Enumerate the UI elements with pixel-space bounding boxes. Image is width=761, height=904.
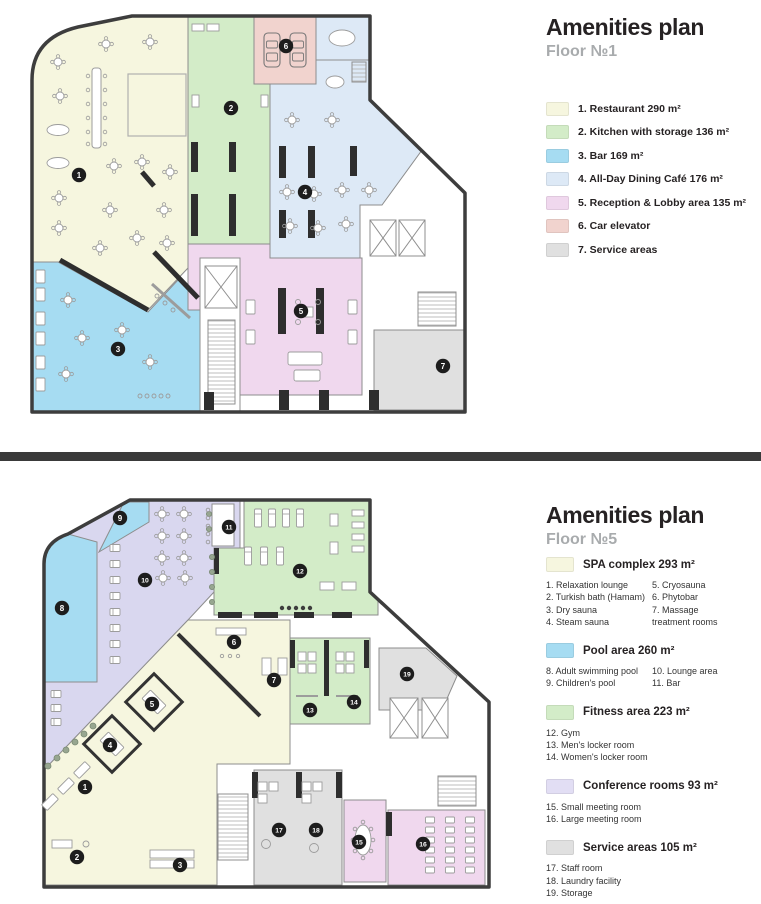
group-items: 8. Adult swimming pool 9. Children's poo… [546, 665, 758, 690]
swatch-service [546, 243, 569, 257]
swatch-kitchen [546, 125, 569, 139]
svg-text:3: 3 [178, 861, 183, 870]
legend-group-conference: Conference rooms 93 m² 15. Small meeting… [546, 779, 758, 826]
legend-subitem: 8. Adult swimming pool [546, 665, 652, 677]
legend-group-fitness: Fitness area 223 m² 12. Gym 13. Men's lo… [546, 705, 758, 764]
group-header: Pool area 260 m² [546, 643, 758, 658]
group-header: Service areas 105 m² [546, 840, 758, 855]
legend-label: Fitness area 223 m² [583, 706, 690, 718]
legend-subitem: 10. Lounge area [652, 665, 752, 677]
floor5-plan: 1 2 3 4 5 6 7 8 9 10 11 12 13 14 15 16 1… [2, 452, 547, 904]
swatch-service-areas [546, 840, 574, 855]
legend-subitem: 11. Bar [652, 677, 752, 689]
marker-7: 7 [267, 673, 281, 687]
marker-1: 1 [72, 168, 86, 182]
group-items: 12. Gym 13. Men's locker room 14. Women'… [546, 727, 758, 764]
marker-3: 3 [111, 342, 125, 356]
staircase [218, 794, 248, 860]
marker-3: 3 [173, 858, 187, 872]
legend-subitem: 2. Turkish bath (Hamam) [546, 591, 652, 603]
legend-label: Service areas 105 m² [583, 842, 697, 854]
marker-15: 15 [352, 835, 366, 849]
legend-item-service: 7. Service areas [546, 238, 758, 262]
svg-text:14: 14 [350, 700, 358, 707]
legend-group-spa: SPA complex 293 m² 1. Relaxation lounge … [546, 557, 758, 628]
floor-subtitle: Floor №1 [546, 42, 758, 61]
marker-6: 6 [279, 39, 293, 53]
legend-group-service: Service areas 105 m² 17. Staff room 18. … [546, 840, 758, 899]
swatch-bar [546, 149, 569, 163]
legend-subitem: treatment rooms [652, 616, 752, 628]
legend-label: 3. Bar 169 m² [578, 150, 643, 162]
swatch-spa [546, 557, 574, 572]
staircase [438, 776, 476, 806]
page-title: Amenities plan [546, 502, 758, 529]
marker-17: 17 [272, 823, 286, 837]
amenities-plan-poster: 1 2 3 4 5 6 7 Amenities plan Floor №1 1.… [0, 0, 761, 904]
legend-subitem: 5. Cryosauna [652, 579, 752, 591]
swatch-pool [546, 643, 574, 658]
legend-subitem: 14. Women's locker room [546, 751, 686, 763]
floor1-plan: 1 2 3 4 5 6 7 [2, 0, 547, 452]
legend-label: Conference rooms 93 m² [583, 780, 718, 792]
marker-2: 2 [70, 850, 84, 864]
staircase [352, 62, 366, 82]
legend-item-car-elevator: 6. Car elevator [546, 215, 758, 239]
svg-text:18: 18 [312, 828, 320, 835]
swatch-cafe [546, 172, 569, 186]
svg-text:1: 1 [83, 783, 88, 792]
svg-text:5: 5 [299, 307, 304, 316]
swatch-fitness [546, 705, 574, 720]
marker-9: 9 [113, 511, 127, 525]
marker-19: 19 [400, 667, 414, 681]
group-header: SPA complex 293 m² [546, 557, 758, 572]
legend-item-cafe: 4. All-Day Dining Café 176 m² [546, 168, 758, 192]
legend-subitem: 3. Dry sauna [546, 604, 652, 616]
svg-text:16: 16 [419, 842, 427, 849]
floor1-section: 1 2 3 4 5 6 7 Amenities plan Floor №1 1.… [0, 0, 761, 452]
marker-1: 1 [78, 780, 92, 794]
swatch-car-elevator [546, 219, 569, 233]
staircase [418, 292, 456, 326]
svg-text:2: 2 [229, 104, 234, 113]
svg-text:2: 2 [75, 853, 80, 862]
marker-2: 2 [224, 101, 238, 115]
svg-text:17: 17 [275, 828, 283, 835]
marker-16: 16 [416, 837, 430, 851]
svg-text:10: 10 [141, 578, 149, 585]
svg-text:3: 3 [116, 345, 121, 354]
legend-subitem: 17. Staff room [546, 862, 686, 874]
legend-label: 5. Reception & Lobby area 135 m² [578, 197, 746, 209]
svg-text:13: 13 [306, 708, 314, 715]
svg-text:4: 4 [303, 188, 308, 197]
legend-label: 4. All-Day Dining Café 176 m² [578, 173, 723, 185]
region-locker-rooms [290, 638, 370, 724]
marker-12: 12 [293, 564, 307, 578]
region-service [374, 330, 465, 410]
staircase [208, 320, 235, 404]
group-items: 1. Relaxation lounge 2. Turkish bath (Ha… [546, 579, 758, 628]
legend-group-pool: Pool area 260 m² 8. Adult swimming pool … [546, 643, 758, 690]
legend-floor5: Amenities plan Floor №5 SPA complex 293 … [546, 502, 758, 904]
swatch-conference [546, 779, 574, 794]
svg-text:7: 7 [272, 676, 277, 685]
legend-subitem: 19. Storage [546, 887, 686, 899]
legend-items: 1. Restaurant 290 m² 2. Kitchen with sto… [546, 97, 758, 262]
legend-item-reception: 5. Reception & Lobby area 135 m² [546, 191, 758, 215]
legend-subitem: 6. Phytobar [652, 591, 752, 603]
legend-groups: SPA complex 293 m² 1. Relaxation lounge … [546, 557, 758, 899]
svg-text:6: 6 [232, 638, 237, 647]
group-header: Conference rooms 93 m² [546, 779, 758, 794]
marker-14: 14 [347, 695, 361, 709]
legend-label: Pool area 260 m² [583, 645, 674, 657]
svg-text:15: 15 [355, 840, 363, 847]
region-adult-pool [44, 534, 97, 682]
swatch-reception [546, 196, 569, 210]
svg-text:11: 11 [225, 525, 232, 532]
legend-subitem: 9. Children's pool [546, 677, 652, 689]
marker-13: 13 [303, 703, 317, 717]
marker-18: 18 [309, 823, 323, 837]
floor-subtitle: Floor №5 [546, 530, 758, 549]
marker-8: 8 [55, 601, 69, 615]
legend-label: 6. Car elevator [578, 220, 650, 232]
legend-subitem: 15. Small meeting room [546, 801, 686, 813]
marker-5: 5 [145, 697, 159, 711]
group-header: Fitness area 223 m² [546, 705, 758, 720]
legend-label: SPA complex 293 m² [583, 559, 695, 571]
svg-text:7: 7 [441, 362, 446, 371]
svg-text:9: 9 [118, 514, 123, 523]
svg-text:4: 4 [108, 741, 113, 750]
legend-item-kitchen: 2. Kitchen with storage 136 m² [546, 121, 758, 145]
svg-text:19: 19 [403, 672, 411, 679]
svg-text:12: 12 [296, 569, 304, 576]
svg-text:1: 1 [77, 171, 82, 180]
marker-6: 6 [227, 635, 241, 649]
svg-text:6: 6 [284, 42, 289, 51]
legend-item-restaurant: 1. Restaurant 290 m² [546, 97, 758, 121]
legend-subitem: 16. Large meeting room [546, 813, 686, 825]
legend-label: 1. Restaurant 290 m² [578, 103, 681, 115]
svg-text:5: 5 [150, 700, 155, 709]
legend-subitem: 4. Steam sauna [546, 616, 652, 628]
marker-5: 5 [294, 304, 308, 318]
legend-label: 7. Service areas [578, 244, 657, 256]
marker-4: 4 [103, 738, 117, 752]
legend-subitem: 1. Relaxation lounge [546, 579, 652, 591]
group-items: 15. Small meeting room 16. Large meeting… [546, 801, 758, 826]
group-items: 17. Staff room 18. Laundry facility 19. … [546, 862, 758, 899]
marker-10: 10 [138, 573, 152, 587]
page-title: Amenities plan [546, 14, 758, 41]
legend-subitem: 12. Gym [546, 727, 686, 739]
legend-subitem: 13. Men's locker room [546, 739, 686, 751]
marker-4: 4 [298, 185, 312, 199]
legend-item-bar: 3. Bar 169 m² [546, 144, 758, 168]
legend-label: 2. Kitchen with storage 136 m² [578, 126, 729, 138]
swatch-restaurant [546, 102, 569, 116]
legend-floor1: Amenities plan Floor №1 1. Restaurant 29… [546, 14, 758, 262]
legend-subitem: 18. Laundry facility [546, 875, 686, 887]
marker-11: 11 [222, 520, 236, 534]
svg-text:8: 8 [60, 604, 65, 613]
marker-7: 7 [436, 359, 450, 373]
legend-subitem: 7. Massage [652, 604, 752, 616]
floor5-section: 1 2 3 4 5 6 7 8 9 10 11 12 13 14 15 16 1… [0, 452, 761, 904]
